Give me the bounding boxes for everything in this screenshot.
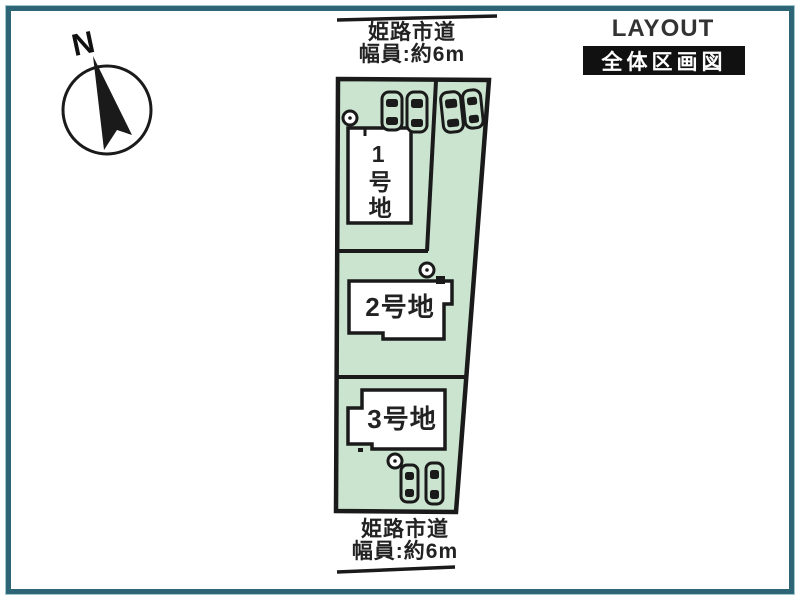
survey-marker-icon [388,454,402,468]
car-icon [382,92,402,130]
road-label-bottom-width: 幅員:約6m [325,541,485,563]
road-label-bottom-name: 姫路市道 [325,519,485,541]
parcel-2-label: 2号地 [348,294,452,321]
road-label-top-name: 姫路市道 [332,22,492,44]
road-label-top-width: 幅員:約6m [332,44,492,66]
survey-marker-icon [343,111,357,125]
car-icon [407,92,427,132]
car-icon [401,465,418,502]
survey-marker-icon [420,263,434,277]
road-edge-line-bottom [337,567,455,572]
car-icon [462,89,484,129]
car-icon [440,91,464,133]
compass-icon [63,56,151,154]
parcel-1-label: 1号地 [366,141,390,229]
road-edge-line-top [337,16,497,20]
car-icon [426,463,443,504]
parcel-3-label: 3号地 [350,406,454,433]
plan-title-badge: 全体区画図 [583,46,745,75]
